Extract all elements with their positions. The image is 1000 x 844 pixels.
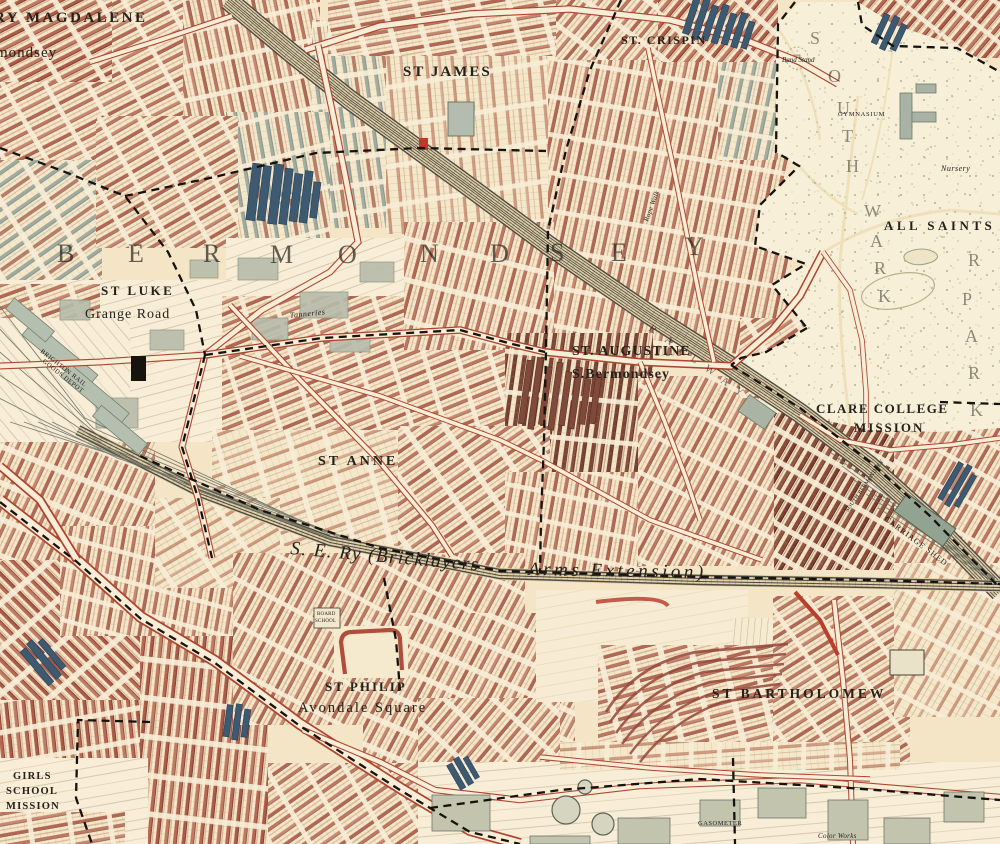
svg-text:N: N bbox=[420, 239, 439, 268]
svg-text:M: M bbox=[270, 240, 293, 269]
svg-text:S: S bbox=[550, 238, 564, 267]
svg-text:ST. CRISPIN: ST. CRISPIN bbox=[621, 33, 707, 47]
svg-text:ST BARTHOLOMEW: ST BARTHOLOMEW bbox=[712, 686, 886, 701]
svg-text:K: K bbox=[970, 400, 983, 420]
svg-text:A: A bbox=[870, 231, 883, 251]
svg-text:H: H bbox=[846, 156, 859, 176]
svg-text:E: E bbox=[611, 238, 627, 267]
svg-text:S.Bermondsey: S.Bermondsey bbox=[572, 367, 670, 382]
svg-text:ST JAMES: ST JAMES bbox=[403, 64, 492, 80]
svg-text:ST LUKE: ST LUKE bbox=[101, 283, 174, 298]
svg-text:mondsey: mondsey bbox=[0, 45, 57, 61]
svg-text:R: R bbox=[968, 250, 980, 270]
svg-text:K: K bbox=[878, 286, 891, 306]
svg-text:P: P bbox=[962, 289, 972, 309]
svg-text:Grange Road: Grange Road bbox=[85, 307, 170, 322]
svg-text:Arms Extension): Arms Extension) bbox=[526, 559, 707, 583]
svg-text:SCHOOL: SCHOOL bbox=[315, 619, 336, 624]
svg-text:D: D bbox=[490, 239, 509, 268]
svg-text:MISSION: MISSION bbox=[6, 801, 60, 812]
svg-text:Y: Y bbox=[685, 232, 704, 261]
svg-text:ALL SAINTS: ALL SAINTS bbox=[884, 218, 995, 233]
svg-text:CLARE COLLEGE: CLARE COLLEGE bbox=[816, 401, 949, 416]
svg-text:Band Stand: Band Stand bbox=[782, 56, 815, 64]
svg-text:GYMNASIUM: GYMNASIUM bbox=[838, 111, 885, 118]
svg-text:ST. AUGUSTINE: ST. AUGUSTINE bbox=[572, 344, 691, 359]
svg-text:MISSION: MISSION bbox=[854, 420, 924, 435]
svg-text:O: O bbox=[828, 66, 841, 86]
svg-text:SCHOOL: SCHOOL bbox=[6, 786, 58, 797]
svg-text:BOARD: BOARD bbox=[317, 612, 336, 617]
svg-text:A: A bbox=[965, 326, 978, 346]
svg-text:Nursery: Nursery bbox=[940, 164, 970, 173]
svg-text:W: W bbox=[864, 201, 881, 221]
svg-text:T: T bbox=[842, 126, 853, 146]
svg-text:ST PHILIP: ST PHILIP bbox=[325, 679, 407, 694]
svg-text:B: B bbox=[57, 239, 74, 268]
svg-text:GIRLS: GIRLS bbox=[13, 771, 52, 782]
svg-text:O: O bbox=[338, 240, 357, 269]
svg-text:S: S bbox=[810, 28, 820, 48]
svg-text:R: R bbox=[203, 239, 221, 268]
svg-text:ST ANNE: ST ANNE bbox=[318, 454, 398, 469]
svg-text:R: R bbox=[968, 363, 980, 383]
svg-text:Color Works: Color Works bbox=[818, 832, 857, 840]
svg-text:E: E bbox=[128, 239, 144, 268]
svg-text:R: R bbox=[874, 258, 886, 278]
svg-text:RY MAGDALENE: RY MAGDALENE bbox=[0, 10, 148, 26]
svg-text:GASOMETER: GASOMETER bbox=[698, 820, 742, 827]
svg-text:Avondale Square: Avondale Square bbox=[298, 700, 427, 716]
